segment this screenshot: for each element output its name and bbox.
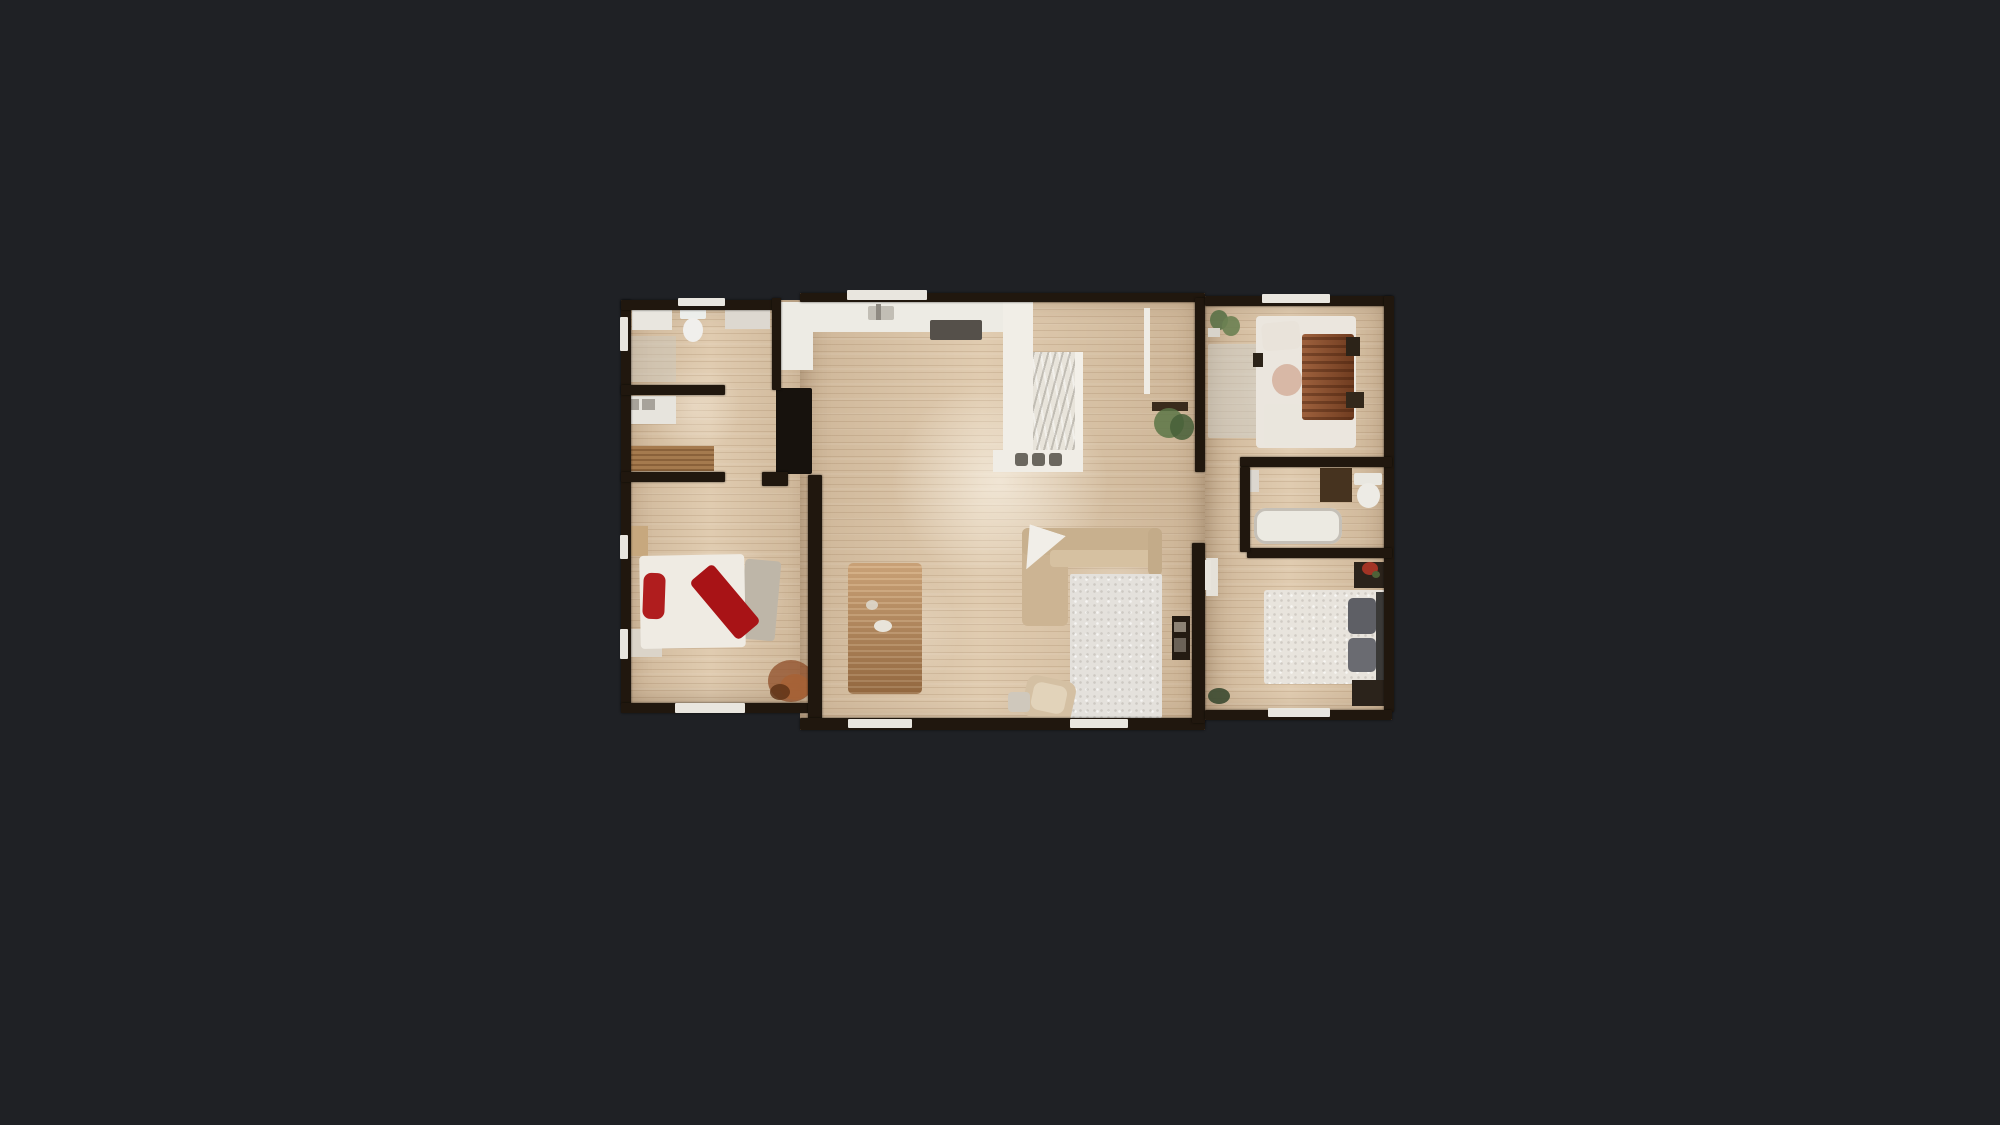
wall-bathroom2-left: [1240, 467, 1250, 552]
bed2-flowers-green: [1372, 571, 1380, 578]
stool-3: [1049, 453, 1062, 466]
bed3-planter: [1208, 328, 1220, 337]
window-kitchen-hood: [847, 290, 927, 300]
laundry-bench: [624, 446, 714, 471]
bathroom1-mat: [624, 336, 676, 382]
wall-center-right-upper: [1195, 298, 1205, 472]
wall-center-right-lower: [1192, 543, 1205, 723]
bed1-red-pillow: [642, 573, 666, 620]
bed2-pillow-b: [1348, 638, 1376, 672]
bed3-nightstand-a: [1346, 337, 1360, 356]
bed3-pillow: [1261, 320, 1301, 351]
bathroom1-vanity: [632, 308, 672, 330]
refrigerator: [776, 388, 812, 474]
wall-hall-divider: [1240, 457, 1392, 467]
window-bed2-bottom: [1268, 708, 1330, 717]
wall-kitchen-left: [772, 298, 781, 390]
bed2-plant: [1208, 688, 1230, 704]
bathtub: [1254, 508, 1342, 544]
bed2-nightstand-bottom: [1352, 680, 1388, 706]
console-plant-b: [1170, 414, 1194, 440]
toilet1-bowl: [683, 318, 703, 342]
dining-centerpiece: [874, 620, 892, 632]
kitchen-counter-left: [781, 302, 813, 370]
window-bed1-left-a: [620, 535, 628, 559]
wall-laundry-divider: [621, 472, 725, 482]
bed3-nightstand-b: [1346, 392, 1364, 408]
bed3-round-pillow: [1272, 364, 1302, 396]
bed3-rug: [1208, 344, 1258, 438]
peninsula-column: [1003, 302, 1033, 464]
sofa-arm: [1148, 528, 1162, 576]
window-left-upper: [620, 317, 628, 351]
floor-plan[interactable]: [620, 292, 1395, 732]
wall-bed1-door-stub: [762, 472, 788, 486]
bathroom2-vanity: [1320, 468, 1352, 502]
area-rug: [1070, 574, 1162, 718]
media-item-a: [1174, 622, 1186, 632]
stool-2: [1032, 453, 1045, 466]
bed2-door-leaf: [1205, 560, 1211, 590]
bed1-plant-c: [770, 684, 790, 700]
floorplan-viewer: [0, 0, 2000, 1125]
toilet2-bowl: [1357, 483, 1380, 508]
bed3-bench: [1264, 404, 1300, 446]
window-bed1-left-b: [620, 629, 628, 659]
side-table: [1008, 692, 1030, 712]
bed2-pillow-a: [1348, 598, 1376, 634]
wall-right-outer: [1384, 296, 1394, 712]
kitchen-sink: [868, 306, 894, 320]
window-center-bottom-a: [848, 719, 912, 728]
entry-door-leaf: [1144, 308, 1150, 394]
window-bathroom1-top: [678, 298, 725, 306]
wall-bathroom1-divider: [621, 385, 725, 395]
dining-napkin: [866, 600, 878, 610]
kitchen-faucet: [876, 304, 881, 320]
window-center-bottom-b: [1070, 719, 1128, 728]
bathroom2-shelf: [1250, 470, 1259, 492]
bed3-dark-item: [1253, 353, 1263, 367]
sofa-seat: [1050, 550, 1158, 567]
stool-1: [1015, 453, 1028, 466]
wall-bed1-right: [808, 475, 822, 720]
window-bed1-bottom: [675, 703, 745, 713]
wall-bed2-top: [1247, 548, 1392, 558]
media-item-b: [1174, 638, 1186, 652]
dryer: [642, 399, 655, 410]
window-bed3-top: [1262, 294, 1330, 303]
bed3-plant-b: [1222, 316, 1240, 336]
cooktop: [930, 320, 982, 340]
